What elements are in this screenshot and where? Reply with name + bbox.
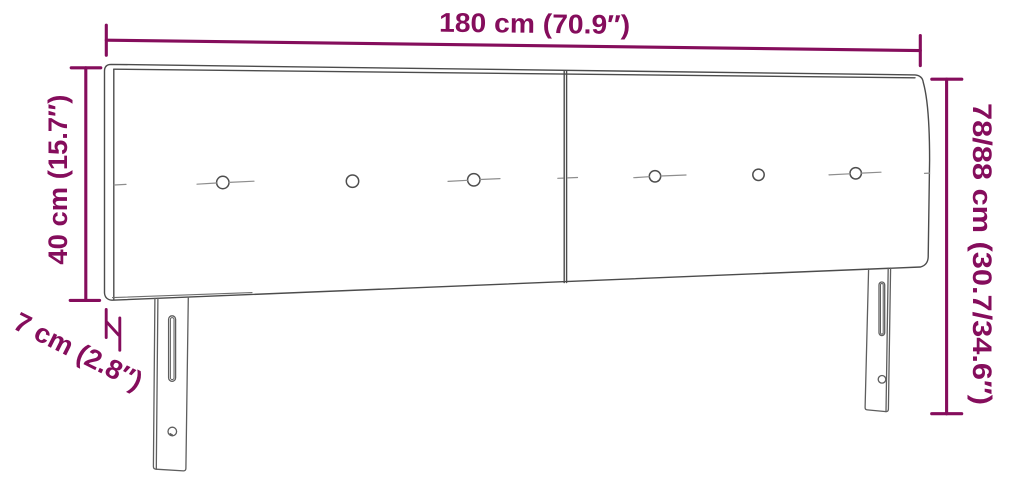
svg-text:180 cm (70.9″): 180 cm (70.9″) xyxy=(439,8,630,40)
svg-text:40 cm (15.7″): 40 cm (15.7″) xyxy=(43,95,73,265)
svg-text:78/88 cm (30.7/34.6″): 78/88 cm (30.7/34.6″) xyxy=(967,103,997,405)
svg-text:7 cm (2.8″): 7 cm (2.8″) xyxy=(9,307,147,397)
